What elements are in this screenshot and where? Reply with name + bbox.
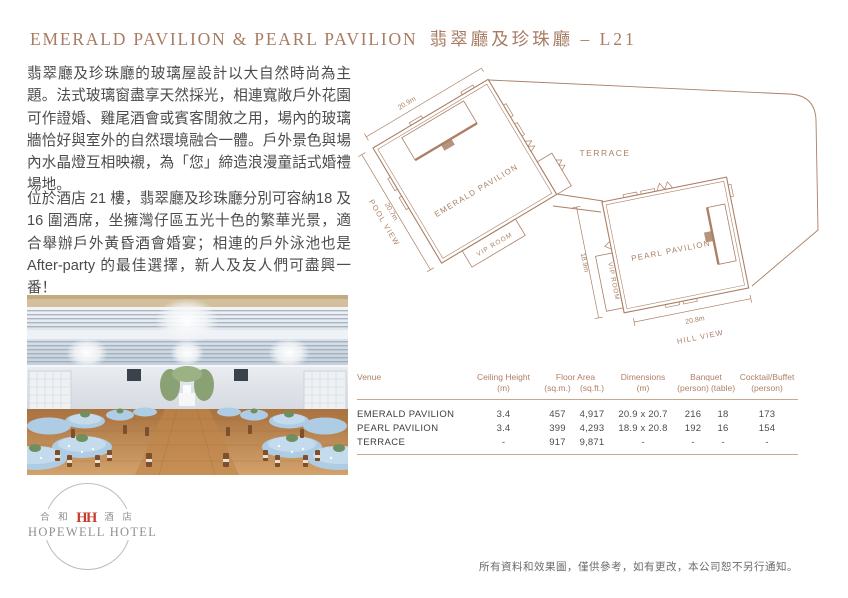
cell-cocktail: - [736,437,798,455]
cell-ceiling: - [466,437,541,455]
floorplan-hill-view-label: HILL VIEW [676,328,724,346]
col-unit-banquet-table: (table) [710,383,736,400]
col-unit-dims: (m) [610,383,676,400]
page-title: EMERALD PAVILION & PEARL PAVILION 翡翠廳及珍珠… [30,26,637,51]
cell-cocktail: 154 [736,420,798,437]
col-header-dimensions: Dimensions [610,372,676,383]
cell-sqft: 9,871 [574,437,610,455]
col-unit-banquet-person: (person) [676,383,710,400]
cell-banquet-person: 216 [676,400,710,421]
cell-ceiling: 3.4 [466,420,541,437]
col-header-banquet: Banquet [676,372,736,383]
disclaimer-text: 所有資料和效果圖，僅供參考，如有更改，本公司恕不另行通知。 [479,559,798,574]
col-unit-cocktail-person: (person) [736,383,798,400]
col-unit-venue [357,383,466,400]
col-header-ceiling: Ceiling Height [466,372,541,383]
floorplan-pearl-dim-bottom: 20.8m [685,315,706,326]
col-unit-ceiling: (m) [466,383,541,400]
col-header-venue: Venue [357,372,466,383]
floor-plan: EMERALD PAVILION VIP ROOM 20.9m 20.7m PO… [353,68,835,380]
cell-dims: - [610,437,676,455]
cell-venue: PEARL PAVILION [357,420,466,437]
floorplan-emerald-pavilion: EMERALD PAVILION VIP ROOM 20.9m 20.7m PO… [353,68,585,296]
cell-cocktail: 173 [736,400,798,421]
cell-sqm: 399 [541,420,574,437]
floorplan-pearl-pavilion: PEARL PAVILION VIP ROOM 18.9m 20.8m HILL… [568,170,760,362]
venue-brochure-page: EMERALD PAVILION & PEARL PAVILION 翡翠廳及珍珠… [0,0,848,598]
banquet-hall-photo [27,295,348,475]
page-title-en: EMERALD PAVILION & PEARL PAVILION [30,29,417,49]
col-unit-sqft: (sq.ft.) [574,383,610,400]
cell-venue: EMERALD PAVILION [357,400,466,421]
cell-dims: 20.9 x 20.7 [610,400,676,421]
floorplan-terrace-label: TERRACE [579,148,630,158]
cell-banquet-person: - [676,437,710,455]
floorplan-pearl-dim-side: 18.9m [579,252,590,273]
logo-zh-suffix: 酒 店 [104,512,135,523]
floorplan-emerald-dim-top: 20.9m [397,96,417,112]
cell-banquet-person: 192 [676,420,710,437]
floorplan-pearl-label: PEARL PAVILION [630,239,711,264]
cell-dims: 18.9 x 20.8 [610,420,676,437]
description-paragraph-1: 翡翠廳及珍珠廳的玻璃屋設計以大自然時尚為主題。法式玻璃窗盡享天然採光，相連寬敞戶… [27,63,351,197]
col-header-cocktail: Cocktail/Buffet [736,372,798,383]
page-title-zh: 翡翠廳及珍珠廳 – L21 [430,29,637,49]
logo-line-2: HOPEWELL HOTEL [26,523,149,541]
cell-sqm: 457 [541,400,574,421]
cell-banquet-table: 18 [710,400,736,421]
col-unit-sqm: (sq.m.) [541,383,574,400]
cell-ceiling: 3.4 [466,400,541,421]
cell-sqft: 4,293 [574,420,610,437]
cell-sqft: 4,917 [574,400,610,421]
col-header-floor-area: Floor Area [541,372,610,383]
table-row-emerald: EMERALD PAVILION 3.4 457 4,917 20.9 x 20… [357,400,798,421]
cell-venue: TERRACE [357,437,466,455]
description-paragraph-2: 位於酒店 21 樓，翡翠廳及珍珠廳分別可容納18 及 16 圍酒席，坐擁灣仔區五… [27,188,351,299]
table-row-pearl: PEARL PAVILION 3.4 399 4,293 18.9 x 20.8… [357,420,798,437]
logo-zh-prefix: 合 和 [40,512,71,523]
hotel-logo: 合 和 HH 酒 店 HOPEWELL HOTEL [26,481,149,577]
logo-hotel-name: HOPEWELL HOTEL [26,525,159,540]
cell-sqm: 917 [541,437,574,455]
floorplan-emerald-label: EMERALD PAVILION [433,162,520,219]
table-row-terrace: TERRACE - 917 9,871 - - - - [357,437,798,455]
cell-banquet-table: 16 [710,420,736,437]
venue-spec-table: Venue Ceiling Height Floor Area Dimensio… [357,372,798,455]
cell-banquet-table: - [710,437,736,455]
